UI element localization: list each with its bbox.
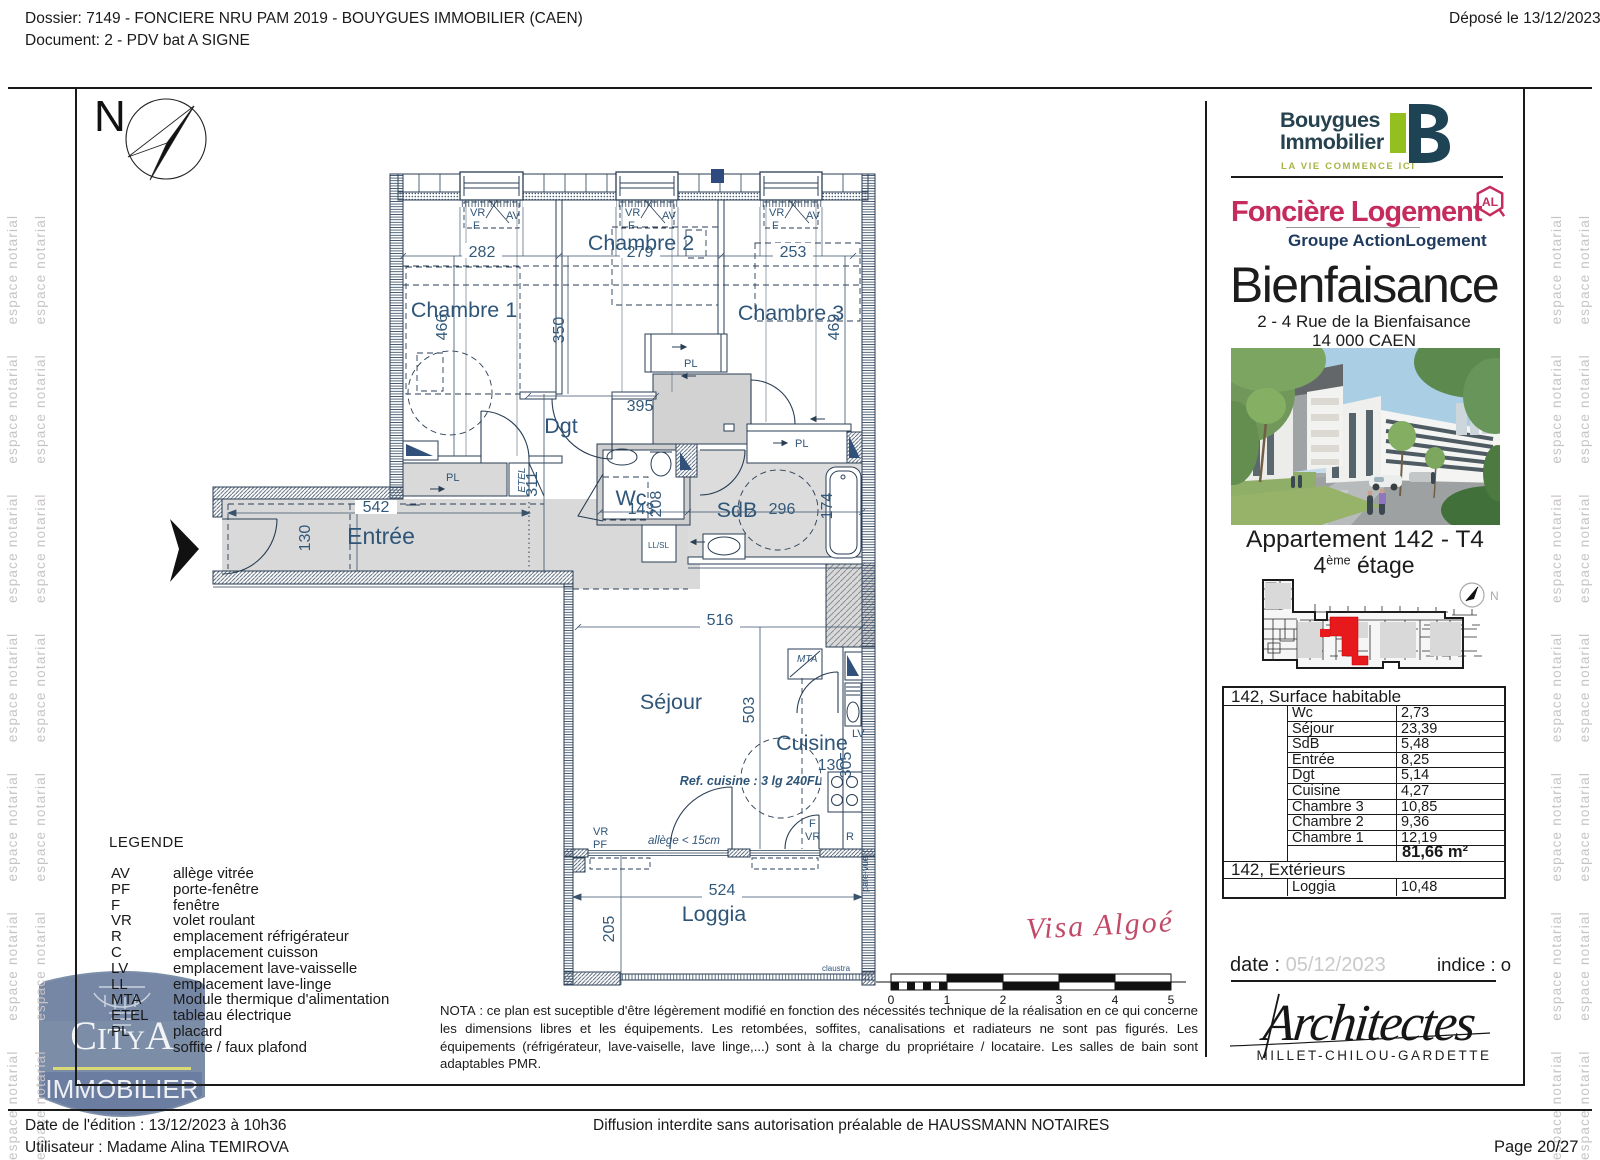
- svg-text:claustra: claustra: [822, 964, 851, 973]
- svg-text:LV: LV: [852, 728, 865, 740]
- svg-text:PL: PL: [684, 358, 697, 370]
- svg-text:282: 282: [469, 244, 496, 261]
- svg-text:Entrée: Entrée: [347, 523, 415, 549]
- svg-text:Ref. cuisine : 3 lg 240FL: Ref. cuisine : 3 lg 240FL: [680, 774, 822, 788]
- svg-text:VR: VR: [593, 826, 608, 838]
- svg-text:F: F: [473, 220, 480, 232]
- svg-text:Dgt: Dgt: [544, 414, 577, 438]
- svg-text:LL/SL: LL/SL: [648, 541, 669, 550]
- svg-text:296: 296: [769, 501, 796, 518]
- svg-text:516: 516: [707, 612, 734, 629]
- svg-text:VR: VR: [625, 207, 640, 219]
- svg-text:Chambre 2: Chambre 2: [588, 231, 694, 255]
- svg-text:Cuisine: Cuisine: [776, 731, 848, 755]
- svg-text:AV: AV: [806, 210, 821, 222]
- svg-text:F: F: [809, 818, 816, 830]
- svg-text:MTA: MTA: [797, 654, 818, 665]
- svg-text:130: 130: [297, 525, 314, 552]
- svg-text:Chambre 1: Chambre 1: [411, 298, 517, 322]
- svg-text:AV: AV: [662, 210, 677, 222]
- svg-text:pare-vue: pare-vue: [860, 856, 870, 892]
- svg-text:F: F: [628, 220, 635, 232]
- svg-text:N: N: [1490, 589, 1499, 603]
- svg-text:Séjour: Séjour: [640, 690, 702, 714]
- svg-text:524: 524: [709, 882, 736, 899]
- svg-text:VR: VR: [805, 831, 820, 843]
- svg-text:174: 174: [819, 493, 836, 520]
- svg-text:395: 395: [627, 398, 654, 415]
- svg-text:ETEL: ETEL: [517, 467, 528, 492]
- svg-text:R: R: [846, 831, 854, 843]
- svg-text:503: 503: [741, 697, 758, 724]
- svg-text:AL: AL: [1482, 195, 1499, 209]
- svg-text:542: 542: [363, 499, 390, 516]
- svg-text:allège < 15cm: allège < 15cm: [648, 835, 720, 847]
- svg-text:Loggia: Loggia: [682, 902, 747, 926]
- svg-text:Chambre 3: Chambre 3: [738, 301, 844, 325]
- svg-text:MILLET-CHILOU-GARDETTE: MILLET-CHILOU-GARDETTE: [1256, 1048, 1491, 1063]
- svg-text:F: F: [772, 220, 779, 232]
- svg-text:AV: AV: [506, 210, 521, 222]
- svg-text:SdB: SdB: [717, 498, 758, 522]
- svg-text:208: 208: [648, 491, 665, 518]
- svg-text:VR: VR: [769, 207, 784, 219]
- svg-text:130: 130: [818, 757, 845, 774]
- svg-text:Wc: Wc: [615, 486, 646, 510]
- svg-text:PL: PL: [446, 472, 459, 484]
- svg-text:253: 253: [780, 244, 807, 261]
- svg-text:350: 350: [551, 317, 568, 344]
- svg-text:PL: PL: [795, 438, 808, 450]
- svg-text:N: N: [94, 92, 126, 141]
- svg-text:VR: VR: [470, 207, 485, 219]
- svg-text:205: 205: [601, 916, 618, 943]
- svg-text:PF: PF: [593, 839, 607, 851]
